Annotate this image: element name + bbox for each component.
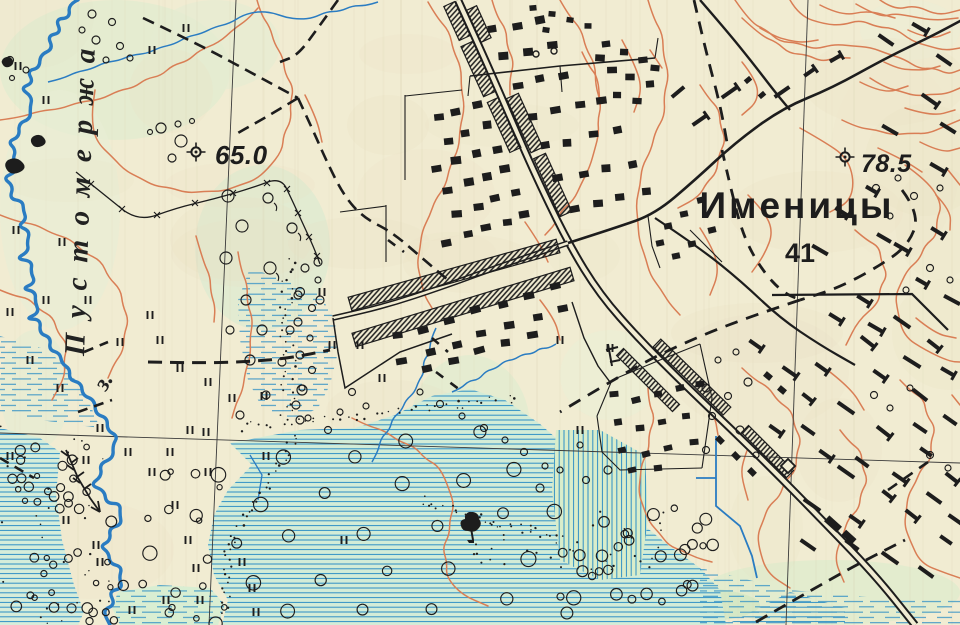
svg-text:41: 41 <box>785 238 815 268</box>
svg-text:78.5: 78.5 <box>861 150 912 178</box>
svg-text:65.0: 65.0 <box>215 140 268 170</box>
svg-text:Именицы: Именицы <box>700 185 895 226</box>
